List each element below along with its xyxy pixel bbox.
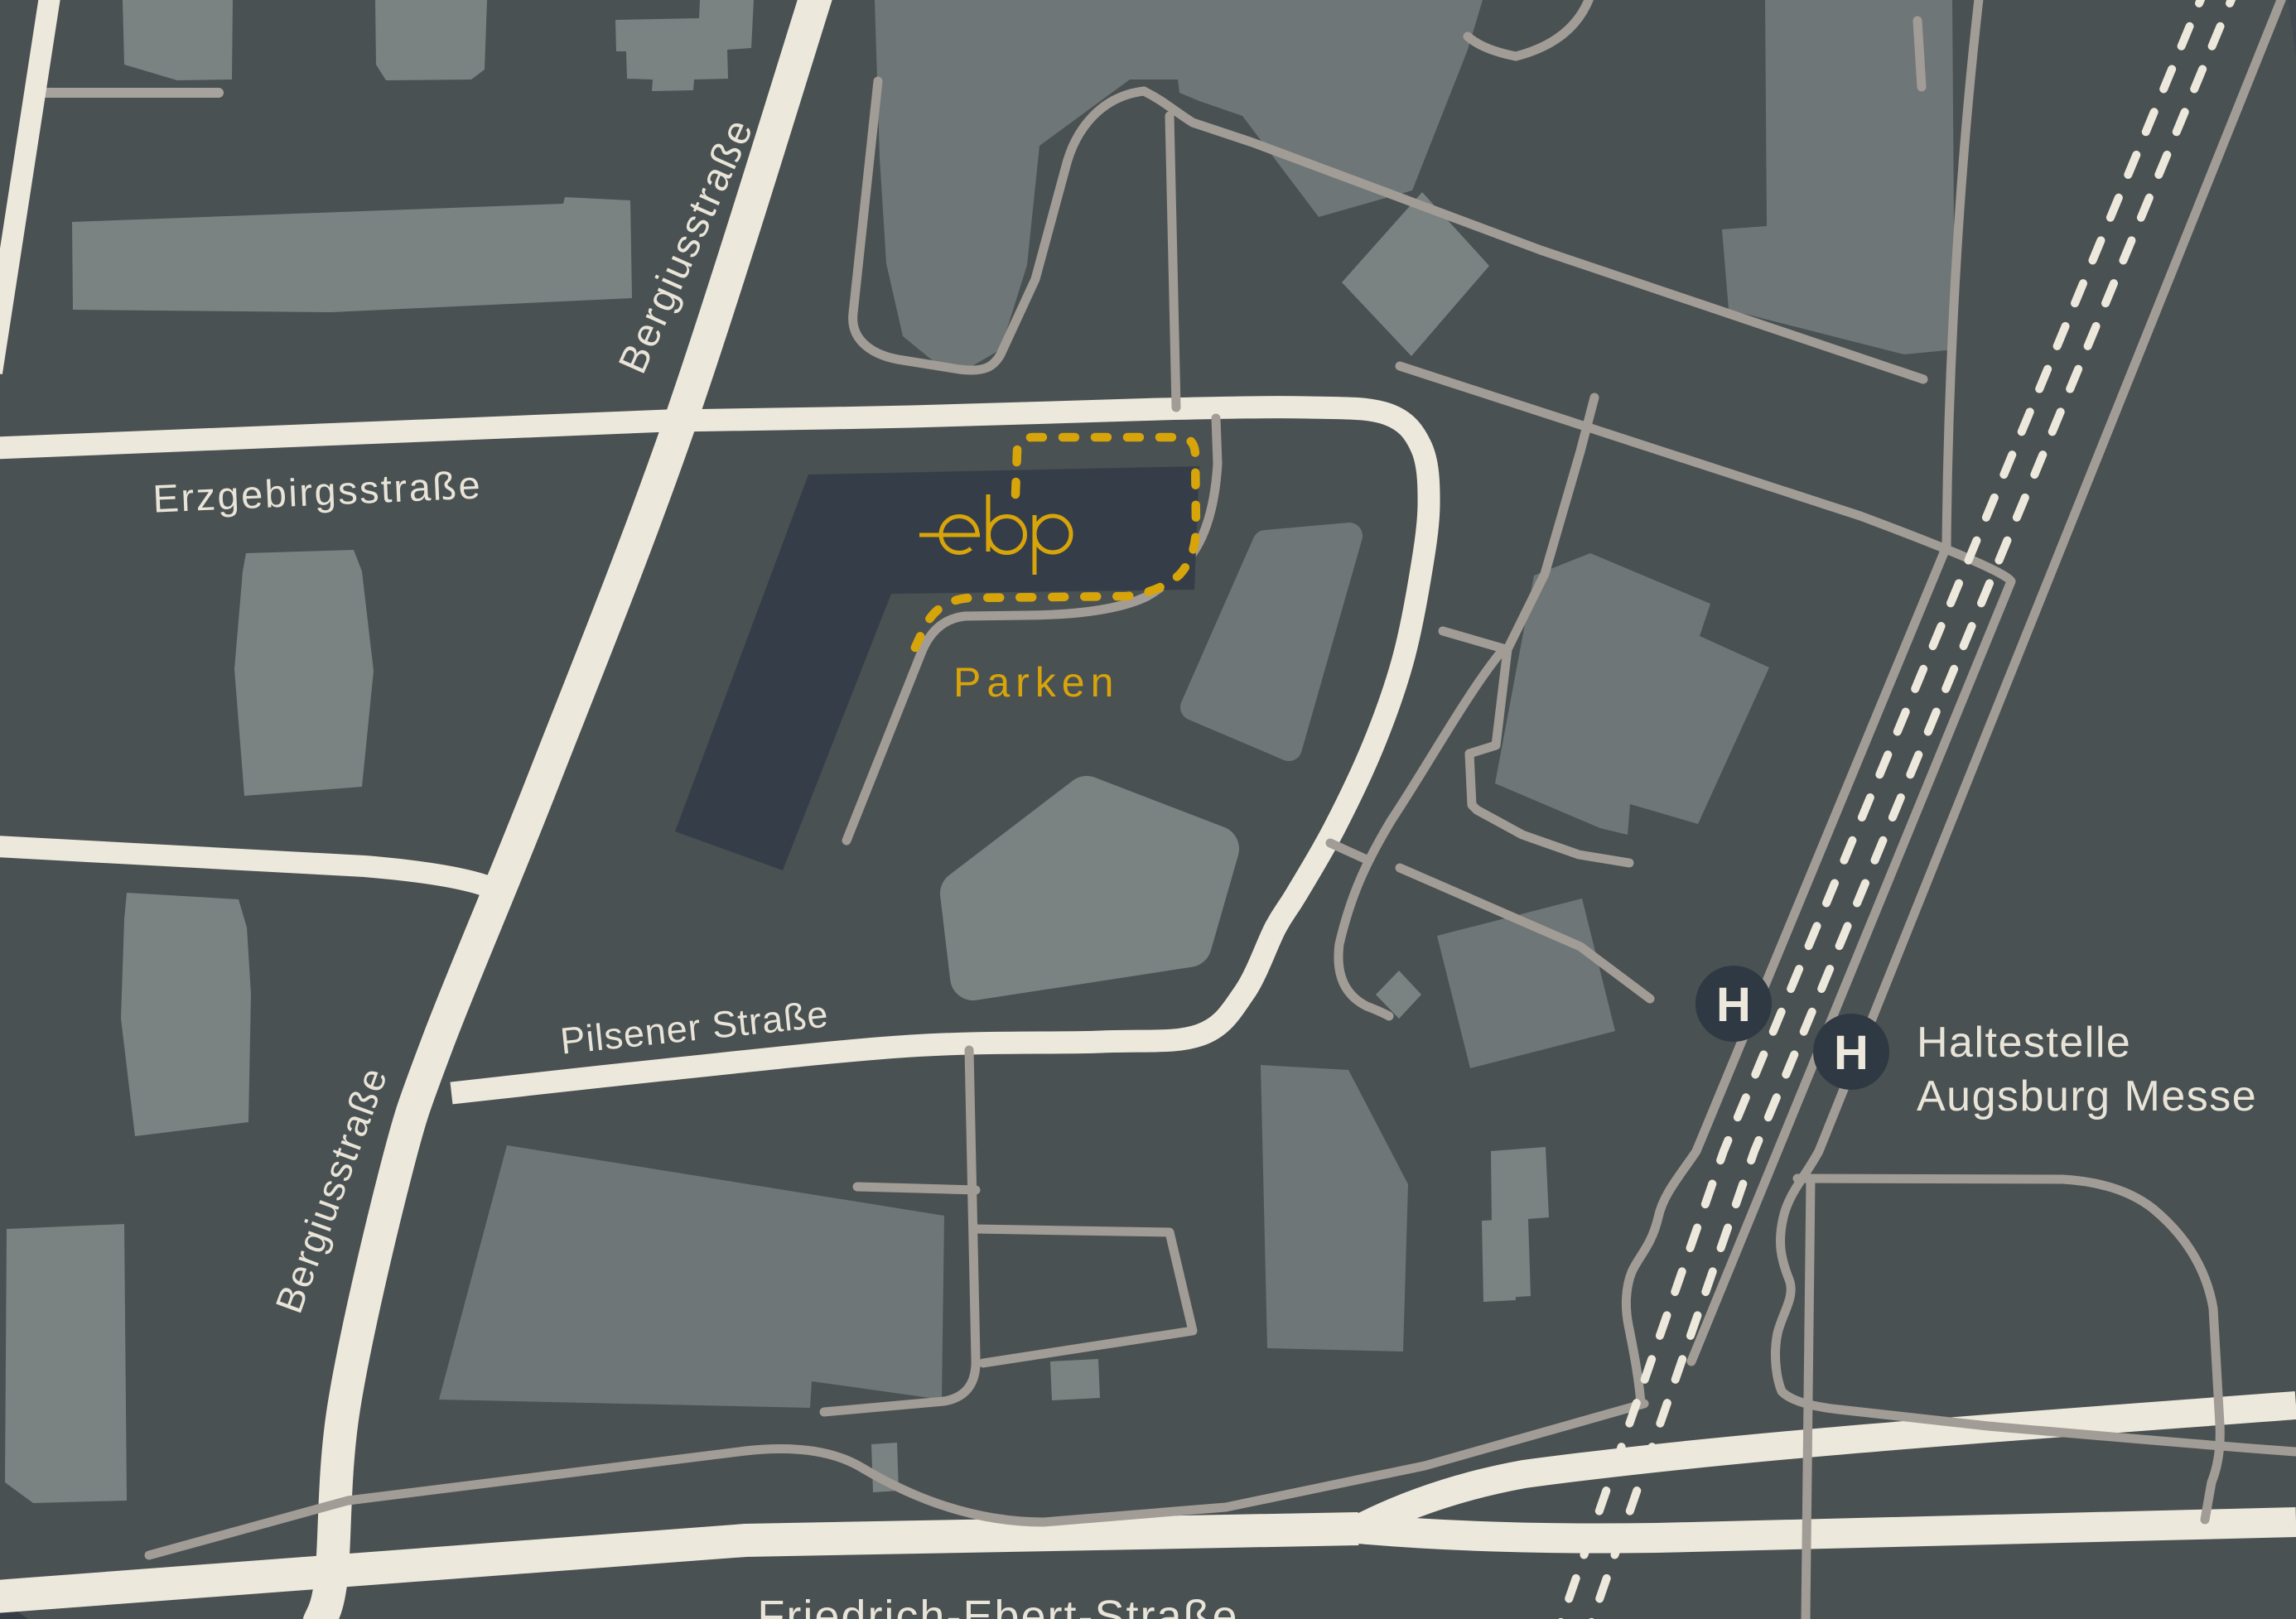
svg-text:H: H bbox=[1716, 978, 1751, 1032]
svg-text:H: H bbox=[1834, 1026, 1869, 1080]
svg-text:Haltestelle: Haltestelle bbox=[1917, 1019, 2131, 1067]
svg-text:Friedrich-Ebert-Straße: Friedrich-Ebert-Straße bbox=[757, 1592, 1238, 1619]
svg-text:Augsburg Messe: Augsburg Messe bbox=[1917, 1072, 2257, 1120]
svg-text:Parken: Parken bbox=[953, 659, 1119, 706]
